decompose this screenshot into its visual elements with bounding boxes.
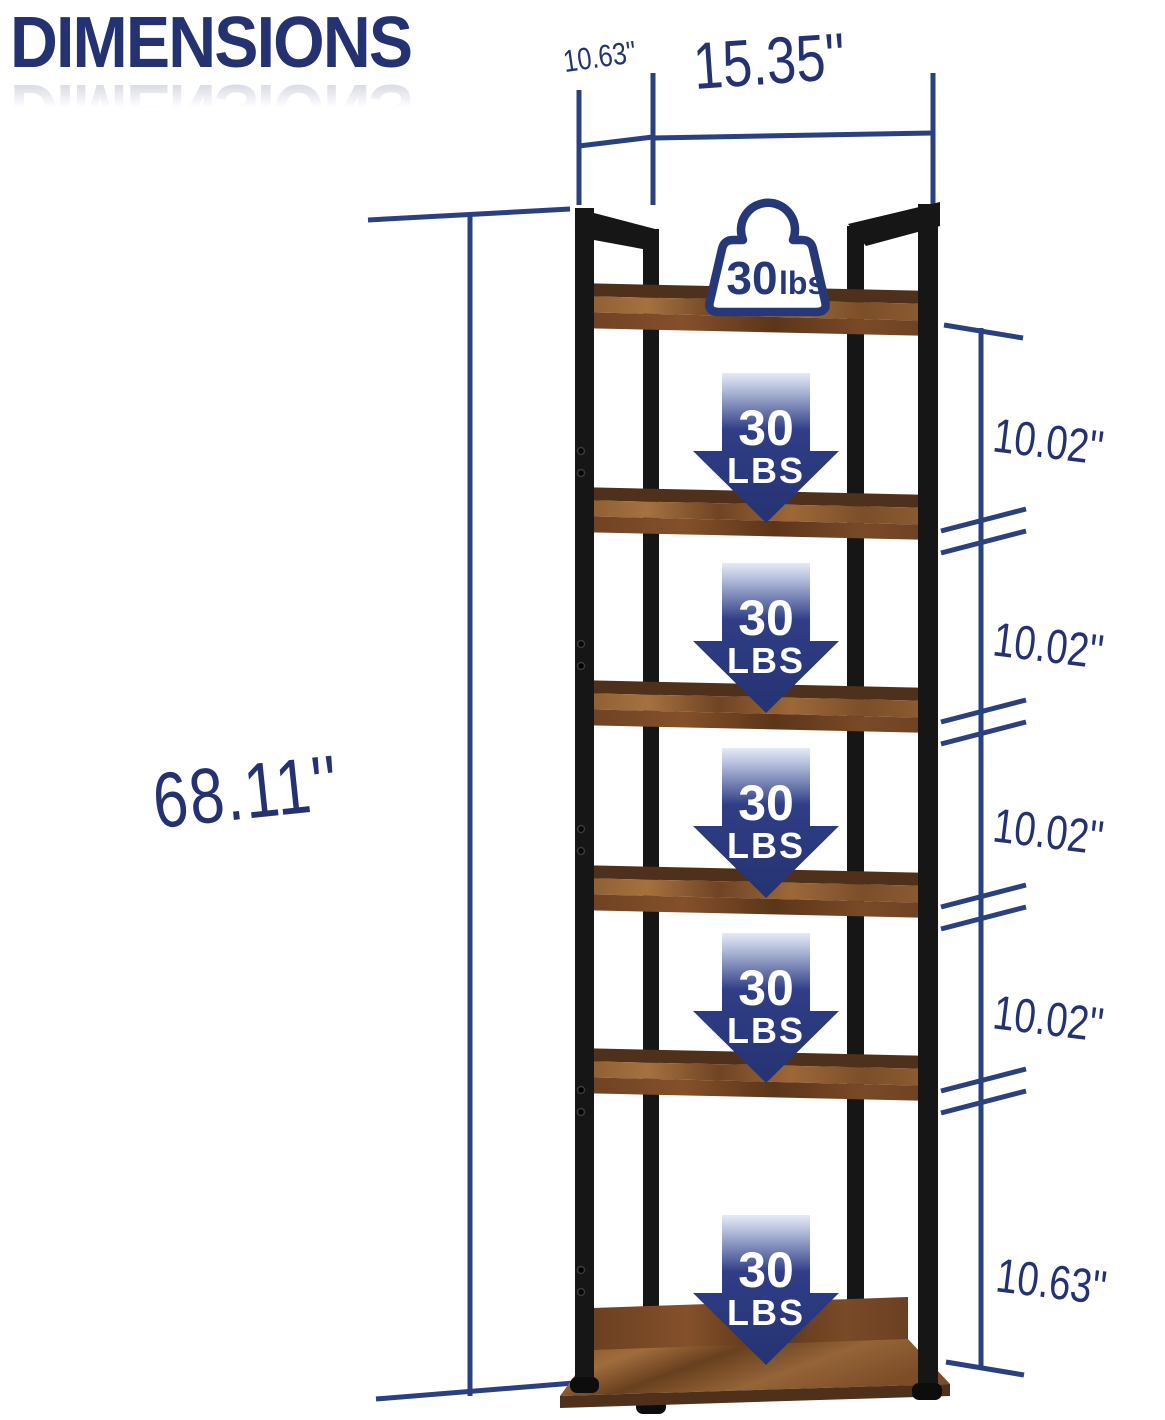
height-dimension-label: 68.11'' [148,737,343,847]
arrow-value: 30 [738,590,794,646]
arrow-unit: LBS [727,1292,805,1333]
arrow-unit: LBS [727,1010,805,1051]
arrow-unit: LBS [727,825,805,866]
arrow-value: 30 [738,960,794,1016]
bookshelf-illustration: 30 lbs 30 LBS 30 LBS 30 LBS 30 LBS 30 LB… [0,0,1165,1420]
back-right-post [847,226,864,1330]
arrow-unit: LBS [727,450,805,491]
arrow-value: 30 [738,775,794,831]
dimension-line-height [368,209,574,1399]
front-right-foot [912,1383,942,1400]
arrow-value: 30 [738,400,794,456]
badge-value: 30 [726,252,777,304]
badge-unit: lbs [779,265,825,301]
back-left-post [643,229,659,1400]
dimension-line-depth [579,90,653,205]
front-left-post [575,208,594,1380]
front-right-post [918,204,938,1386]
arrow-value: 30 [738,1242,794,1298]
weight-badge-icon: 30 lbs [709,203,825,312]
arrow-unit: LBS [727,640,805,681]
product-dimensions-diagram: DIMENSIONS [0,0,1165,1420]
width-dimension-label: 15.35'' [691,18,848,104]
front-left-foot [570,1377,599,1393]
